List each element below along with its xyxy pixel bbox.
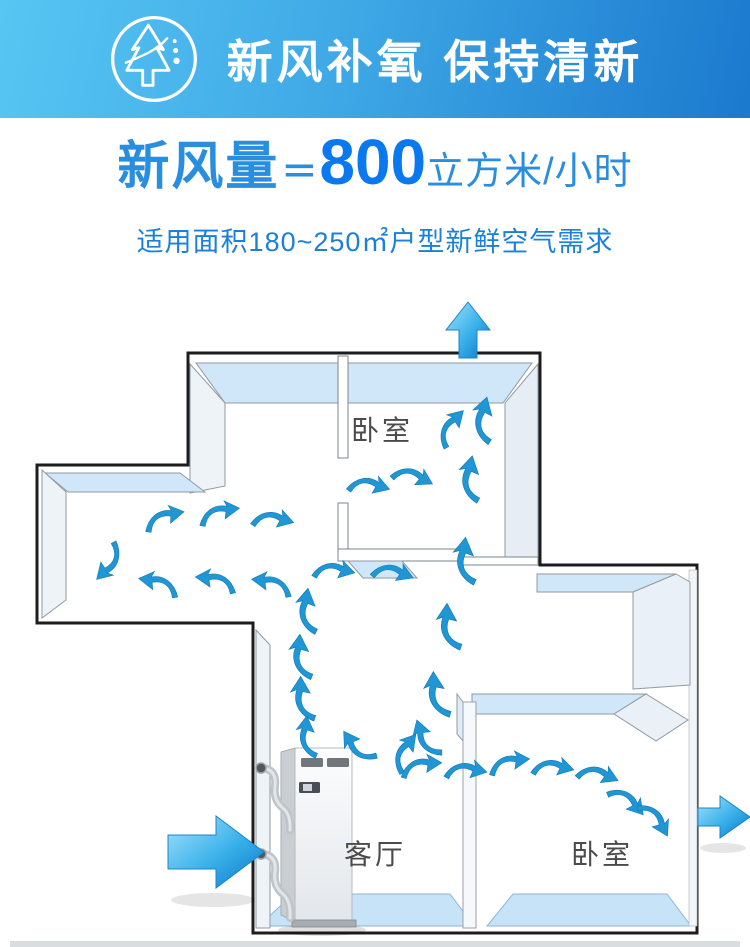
tree-glyph xyxy=(126,25,168,85)
exhaust-up-arrow xyxy=(446,302,490,358)
exhaust-right-arrow xyxy=(698,796,750,853)
unit-grille xyxy=(301,758,323,767)
headline-equals: ＝ xyxy=(281,143,317,195)
banner-title: 新风补氧 保持清新 xyxy=(227,26,644,92)
headline-label: 新风量 xyxy=(117,124,279,199)
floor-plan: 卧室 客厅 卧室 xyxy=(0,300,750,947)
banner: 新风补氧 保持清新 xyxy=(0,0,750,118)
bottom-divider xyxy=(10,941,740,947)
headline-value: 800 xyxy=(319,125,426,199)
unit-grille xyxy=(327,758,349,767)
fresh-air-in-arrow xyxy=(168,816,264,907)
room-label-living: 客厅 xyxy=(344,839,406,870)
unit-base xyxy=(292,920,356,927)
room-label-bedroom-top: 卧室 xyxy=(351,415,413,446)
tree-fresh-air-icon xyxy=(107,12,201,106)
headline: 新风量 ＝ 800 立方米/小时 xyxy=(0,124,750,208)
subtitle: 适用面积180~250㎡户型新鲜空气需求 xyxy=(0,220,750,259)
room-label-bedroom-right: 卧室 xyxy=(571,839,633,870)
page: 新风补氧 保持清新 新风量 ＝ 800 立方米/小时 适用面积180~250㎡户… xyxy=(0,0,750,947)
headline-unit: 立方米/小时 xyxy=(426,140,633,195)
